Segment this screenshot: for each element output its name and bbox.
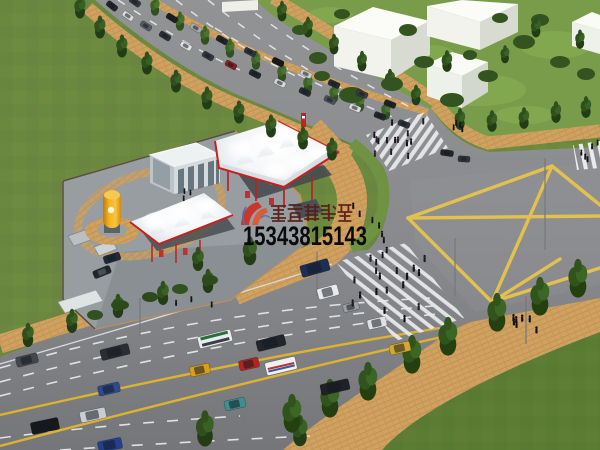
svg-text:15343815143: 15343815143 — [243, 221, 367, 251]
